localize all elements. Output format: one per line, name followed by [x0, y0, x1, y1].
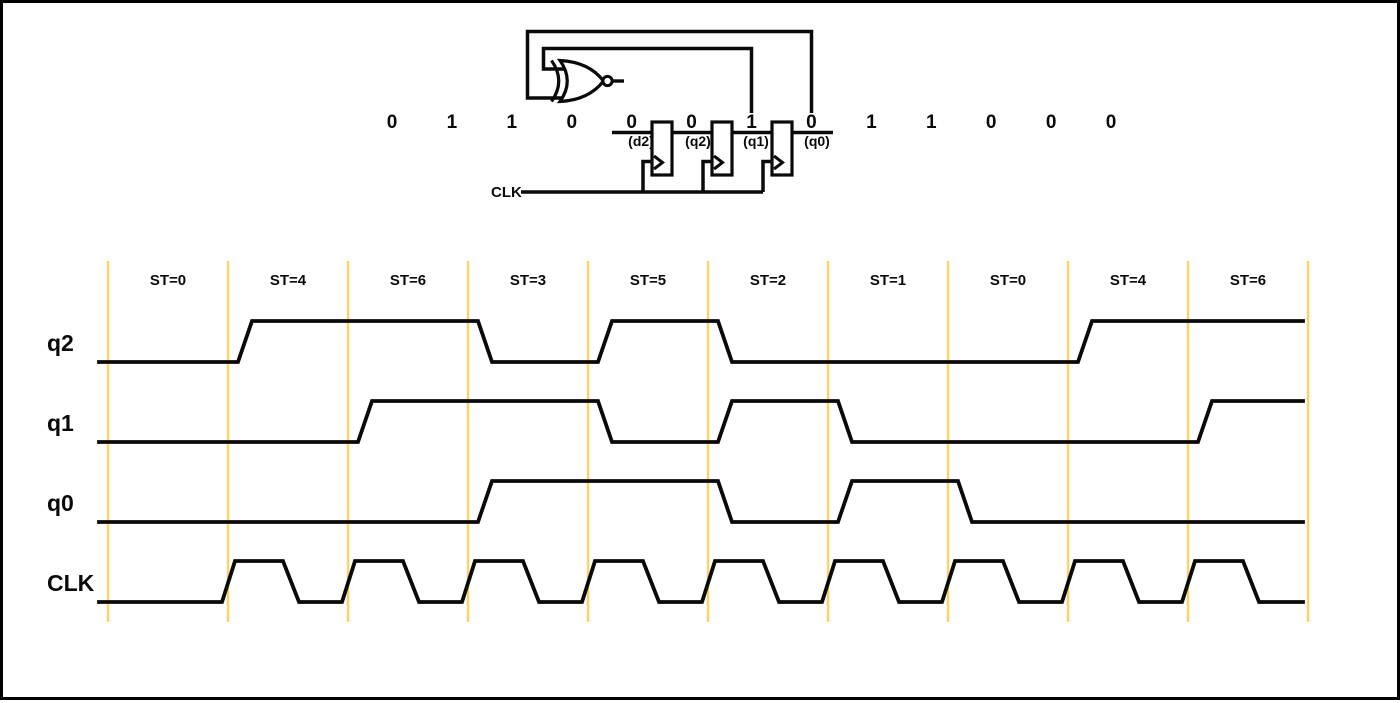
xnor-gate-body	[560, 61, 604, 102]
serial-bit-value: 0	[1046, 112, 1057, 133]
signal-label-q2: q2	[47, 330, 74, 356]
timing-diagram: ST=0ST=4ST=6ST=3ST=5ST=2ST=1ST=0ST=4ST=6…	[47, 261, 1308, 622]
serial-bit-value: 1	[447, 112, 458, 133]
state-label: ST=5	[630, 272, 666, 289]
waveform-trace-clk	[99, 561, 1303, 602]
state-label: ST=2	[750, 272, 786, 289]
serial-bit-value: 1	[746, 112, 757, 133]
waveform-trace-q1	[99, 401, 1303, 442]
register-label: (q1)	[743, 133, 769, 149]
serial-bit-value: 1	[926, 112, 937, 133]
serial-bit-value: 0	[686, 112, 697, 133]
state-label: ST=6	[390, 272, 426, 289]
circuit-diagram: 0110001011000 (d2)(q2)(q1)(q0) CLK	[387, 32, 1117, 202]
serial-bit-value: 1	[507, 112, 518, 133]
state-label: ST=4	[1110, 272, 1147, 289]
state-label: ST=0	[150, 272, 186, 289]
signal-label-clk: CLK	[47, 570, 95, 596]
circuit-and-timing-diagram: 0110001011000 (d2)(q2)(q1)(q0) CLK ST=0S…	[3, 3, 1400, 703]
signal-label-q0: q0	[47, 490, 74, 516]
waveform-traces	[99, 321, 1303, 602]
register-label: (d2)	[628, 133, 654, 149]
serial-bit-value: 0	[387, 112, 398, 133]
signal-labels: q2q1q0CLK	[47, 330, 95, 596]
waveform-trace-q2	[99, 321, 1303, 362]
lfsr-shift-register-page: { "colors": { "background": "#FFFFFF", "…	[0, 0, 1400, 700]
signal-label-q1: q1	[47, 410, 74, 436]
state-label: ST=6	[1230, 272, 1266, 289]
state-label: ST=4	[270, 272, 307, 289]
register-label: (q2)	[685, 133, 711, 149]
register-label: (q0)	[804, 133, 830, 149]
state-label: ST=0	[990, 272, 1026, 289]
xnor-output-bubble	[603, 76, 612, 85]
serial-bit-value: 0	[986, 112, 997, 133]
xnor-gate-icon	[552, 61, 625, 102]
state-label: ST=3	[510, 272, 546, 289]
state-label: ST=1	[870, 272, 906, 289]
serial-bit-value: 1	[866, 112, 877, 133]
serial-bit-value: 0	[1106, 112, 1117, 133]
circuit-clk-label: CLK	[491, 184, 522, 201]
xnor-gate-input-arc	[552, 61, 559, 102]
serial-bit-value: 0	[566, 112, 577, 133]
serial-bit-value: 0	[626, 112, 637, 133]
waveform-trace-q0	[99, 481, 1303, 522]
serial-bits: 0110001011000	[387, 112, 1117, 133]
serial-bit-value: 0	[806, 112, 817, 133]
